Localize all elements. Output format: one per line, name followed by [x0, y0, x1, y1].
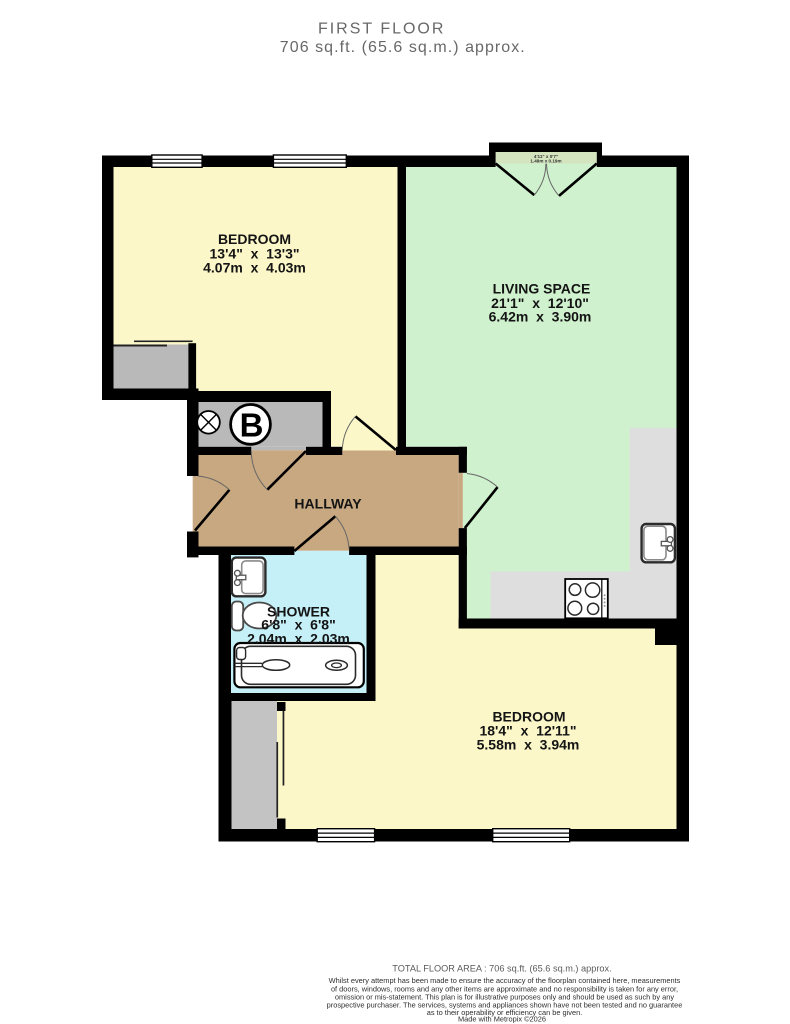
- svg-text:2.04m x 2.03m: 2.04m x 2.03m: [247, 631, 350, 647]
- svg-text:1.49m x 0.19m: 1.49m x 0.19m: [530, 159, 561, 164]
- svg-text:B: B: [240, 406, 264, 443]
- svg-text:706 sq.ft. (65.6 sq.m.) approx: 706 sq.ft. (65.6 sq.m.) approx.: [280, 39, 526, 56]
- svg-text:TOTAL FLOOR AREA : 706 sq.ft.: TOTAL FLOOR AREA : 706 sq.ft. (65.6 sq.m…: [392, 964, 611, 974]
- svg-text:5.58m x 3.94m: 5.58m x 3.94m: [477, 737, 580, 753]
- svg-text:4.07m x 4.03m: 4.07m x 4.03m: [203, 259, 306, 275]
- svg-text:FIRST FLOOR: FIRST FLOOR: [318, 21, 446, 38]
- svg-text:HALLWAY: HALLWAY: [294, 496, 362, 512]
- svg-text:6.42m x 3.90m: 6.42m x 3.90m: [489, 309, 592, 325]
- svg-text:Made with Metropix ©2026: Made with Metropix ©2026: [458, 1015, 546, 1024]
